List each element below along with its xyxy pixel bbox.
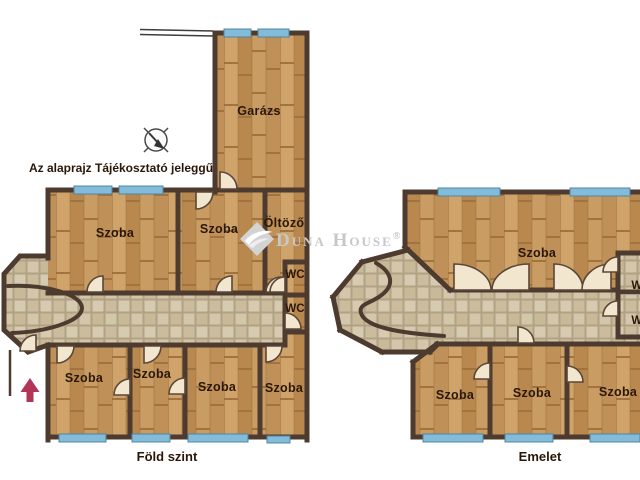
watermark-text: Duna House® — [276, 230, 402, 251]
room-label: Szoba — [265, 381, 304, 395]
upper-floors — [333, 192, 640, 437]
room-label: Szoba — [198, 380, 237, 394]
window — [570, 188, 630, 196]
wc-label: WC — [285, 269, 304, 281]
wc-label: WC — [631, 315, 640, 327]
room-label: Szoba — [65, 371, 104, 385]
floor-plan-image: Garázs Szoba Szoba Öltöző WC WC Szoba Sz… — [0, 0, 640, 480]
window — [258, 29, 289, 37]
window — [59, 434, 106, 442]
disclaimer-text: Az alaprajz Tájékosztató jeleggű — [29, 161, 213, 175]
room-label: Szoba — [599, 385, 638, 399]
floor-title-upper: Emelet — [519, 449, 562, 464]
dressing-room-label: Öltöző — [264, 215, 305, 230]
window — [188, 434, 248, 442]
window — [132, 434, 170, 442]
room-label: Szoba — [200, 222, 239, 236]
room-label: Szoba — [96, 226, 135, 240]
driveway-lines — [140, 30, 213, 37]
room-label: Szoba — [436, 388, 475, 402]
room-label: Szoba — [518, 246, 557, 260]
window — [505, 434, 553, 442]
entrance-arrow-icon — [21, 378, 40, 402]
window — [224, 29, 251, 37]
wc-label: WC — [631, 280, 640, 292]
window — [590, 434, 640, 442]
wc-label: WC — [285, 303, 304, 315]
window — [438, 188, 500, 196]
window — [74, 186, 112, 194]
window — [267, 436, 290, 443]
window — [119, 186, 163, 194]
window — [423, 434, 483, 442]
garage-label: Garázs — [237, 104, 281, 118]
floor-title-ground: Föld szint — [137, 449, 198, 464]
room-label: Szoba — [133, 367, 172, 381]
room-label: Szoba — [513, 386, 552, 400]
compass-icon — [144, 128, 168, 152]
